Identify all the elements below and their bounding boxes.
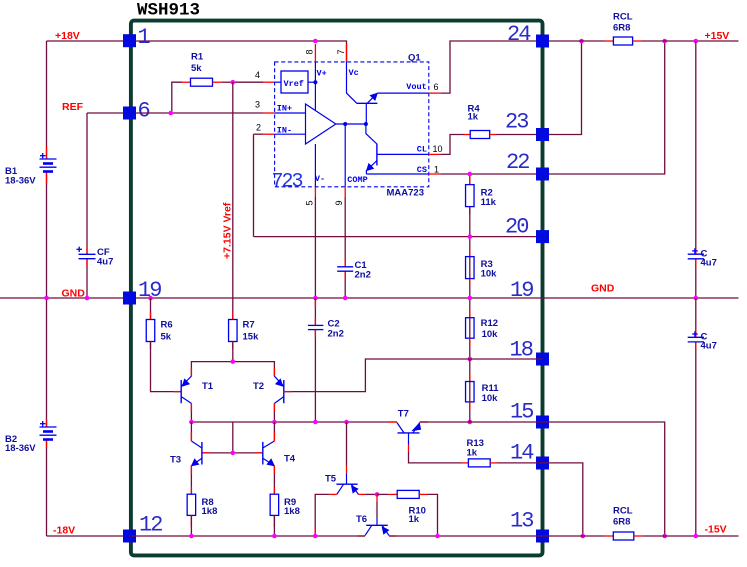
svg-text:15k: 15k: [243, 332, 260, 343]
svg-text:4u7: 4u7: [97, 257, 113, 268]
svg-text:11k: 11k: [481, 197, 497, 208]
svg-text:18-36V: 18-36V: [5, 176, 36, 187]
svg-text:1k8: 1k8: [284, 506, 300, 517]
svg-text:2: 2: [256, 123, 261, 133]
svg-text:3: 3: [255, 100, 260, 110]
svg-text:20: 20: [505, 215, 528, 240]
svg-text:5: 5: [305, 200, 315, 205]
svg-text:6R8: 6R8: [613, 23, 630, 34]
svg-text:6: 6: [138, 99, 150, 124]
svg-text:18-36V: 18-36V: [5, 443, 36, 454]
svg-text:4: 4: [255, 70, 260, 80]
svg-text:2n2: 2n2: [355, 270, 371, 281]
svg-text:1k8: 1k8: [202, 506, 218, 517]
svg-text:IN-: IN-: [277, 126, 292, 136]
svg-text:1: 1: [138, 25, 151, 50]
svg-text:IN+: IN+: [277, 104, 292, 114]
svg-text:RCL: RCL: [613, 506, 633, 517]
svg-text:+18V: +18V: [55, 30, 80, 42]
svg-text:1k: 1k: [467, 447, 478, 458]
svg-text:10: 10: [433, 144, 443, 154]
svg-text:19: 19: [510, 278, 533, 303]
svg-text:5k: 5k: [161, 332, 172, 343]
svg-text:T1: T1: [202, 381, 214, 392]
svg-text:Q1: Q1: [408, 53, 421, 64]
svg-text:10k: 10k: [482, 393, 499, 404]
svg-text:1k: 1k: [409, 514, 420, 525]
svg-text:Vc: Vc: [349, 68, 359, 78]
svg-text:6: 6: [434, 82, 439, 92]
svg-text:10k: 10k: [482, 329, 499, 340]
svg-text:2n2: 2n2: [328, 329, 344, 340]
svg-text:Vref: Vref: [284, 79, 304, 89]
svg-text:R7: R7: [243, 320, 255, 331]
svg-text:-15V: -15V: [705, 524, 727, 536]
svg-text:MAA723: MAA723: [387, 188, 425, 199]
svg-text:REF: REF: [62, 101, 84, 113]
svg-text:WSH913: WSH913: [137, 1, 200, 21]
svg-text:+15V: +15V: [705, 30, 730, 42]
svg-text:T3: T3: [170, 454, 181, 465]
svg-text:12: 12: [139, 513, 162, 538]
svg-text:13: 13: [510, 509, 533, 534]
svg-text:V+: V+: [317, 69, 327, 79]
svg-text:RCL: RCL: [613, 11, 633, 22]
svg-text:7: 7: [336, 49, 346, 54]
svg-text:6R8: 6R8: [613, 517, 630, 528]
svg-text:T7: T7: [398, 408, 409, 419]
svg-text:CL: CL: [417, 145, 427, 155]
svg-text:GND: GND: [62, 288, 86, 300]
svg-text:5k: 5k: [191, 63, 202, 74]
svg-text:15: 15: [510, 400, 533, 425]
svg-text:24: 24: [507, 22, 531, 47]
svg-text:22: 22: [506, 150, 529, 175]
svg-text:9: 9: [334, 200, 344, 205]
svg-text:Vout: Vout: [406, 82, 426, 92]
svg-text:14: 14: [510, 441, 534, 466]
svg-text:V-: V-: [315, 174, 325, 184]
svg-text:+7.15V Vref: +7.15V Vref: [222, 202, 234, 259]
svg-text:T5: T5: [325, 474, 337, 485]
svg-text:T2: T2: [253, 381, 264, 392]
svg-text:GND: GND: [591, 283, 615, 295]
svg-text:CS: CS: [417, 165, 427, 175]
svg-text:10k: 10k: [481, 269, 498, 280]
svg-text:723: 723: [272, 171, 303, 194]
svg-text:R1: R1: [191, 52, 204, 63]
svg-text:4u7: 4u7: [701, 258, 717, 269]
svg-text:T4: T4: [284, 454, 296, 465]
svg-text:1: 1: [434, 165, 439, 175]
svg-text:8: 8: [305, 49, 315, 54]
svg-text:4u7: 4u7: [701, 341, 717, 352]
svg-text:R12: R12: [481, 318, 498, 329]
svg-text:1k: 1k: [468, 112, 479, 123]
svg-text:-18V: -18V: [53, 525, 75, 537]
svg-text:R6: R6: [161, 320, 173, 331]
svg-text:COMP: COMP: [347, 175, 367, 185]
svg-text:T6: T6: [356, 514, 367, 525]
svg-text:23: 23: [505, 110, 528, 135]
